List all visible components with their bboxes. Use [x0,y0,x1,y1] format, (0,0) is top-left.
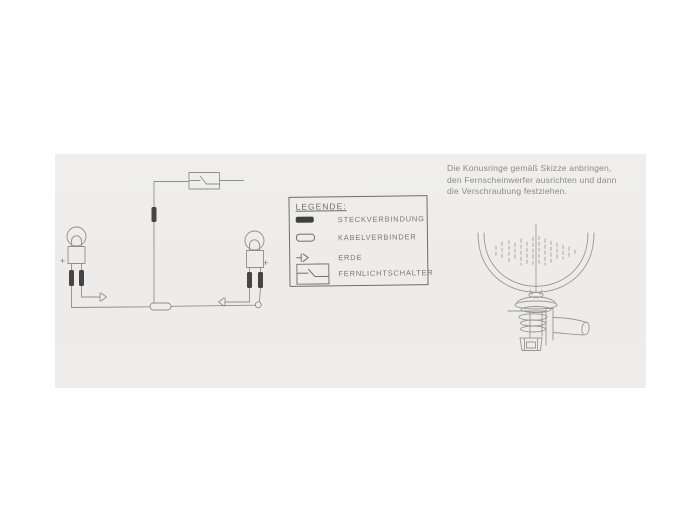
right-lamp-plus-label: + [263,258,268,268]
right-headlamp-bulb-symbol [245,231,264,268]
high-beam-switch-icon [296,263,329,284]
legend-box: LEGENDE: STECKVERBINDUNG KABELVERBINDER [288,195,428,287]
headlamp-sketch [478,224,594,351]
cable-connector-icon [296,234,315,242]
page: + [0,0,700,525]
bottom-bus-wire [72,302,262,310]
left-lamp-plug-connectors [69,270,84,286]
left-headlamp-bulb-symbol [67,227,86,264]
legend-row-kabelverbinder: KABELVERBINDER [296,226,417,247]
terminal-ring-icon [255,302,261,308]
plug-connector-icon [296,217,314,223]
legend-label: STECKVERBINDUNG [338,214,425,224]
mounting-nut [520,338,542,351]
cable-connector-icon [150,303,171,310]
legend-label: ERDE [338,252,362,261]
scanned-document: + [55,154,646,388]
right-ground-icon [219,298,226,306]
left-ground-icon [100,293,107,301]
ground-icon [296,253,310,263]
circuit-diagram: + [60,173,268,311]
right-lamp-plug-connectors [247,272,263,288]
instruction-line: den Fernscheinwerfer ausrichten und dann [447,175,647,187]
right-lamp-wires [225,268,261,303]
plug-connector-icon [79,270,84,286]
legend-label: FERNLICHTSCHALTER [338,268,433,278]
plug-connector-icon [258,272,263,288]
left-lamp-wires [72,264,101,308]
high-beam-switch-symbol [189,173,244,190]
switch-to-bus-wire [152,182,190,304]
instruction-text: Die Konusringe gemäß Skizze anbringen, d… [447,163,647,198]
instruction-line: Die Konusringe gemäß Skizze anbringen, [447,163,647,175]
plug-connector-icon [152,207,157,222]
plug-connector-icon [69,270,74,286]
left-lamp-plus-label: + [60,256,65,266]
instruction-line: die Verschraubung festziehen. [447,186,647,198]
plug-connector-icon [247,272,252,288]
reflector-bowl [478,224,594,292]
legend-label: KABELVERBINDER [338,232,417,242]
legend-row-fernlichtschalter: FERNLICHTSCHALTER [296,262,433,284]
cone-rings [515,297,557,338]
